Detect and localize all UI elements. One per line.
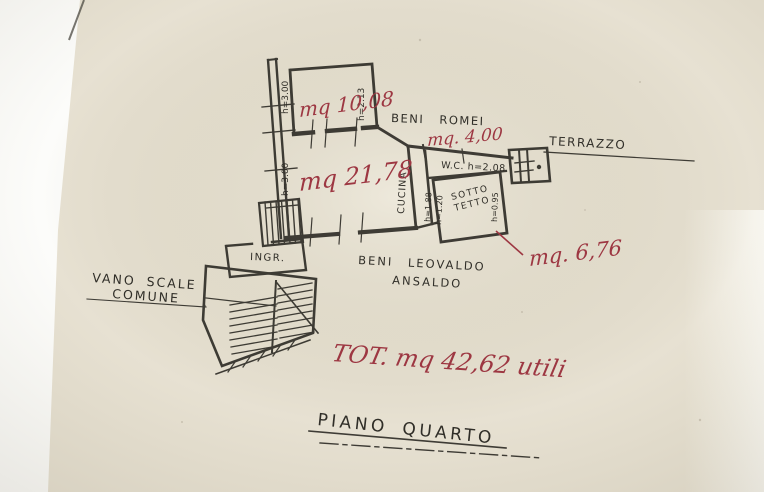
floorplan-photo: BENI ROMEI TERRAZZO W.C. h=2.08 CUCINA S… bbox=[0, 0, 764, 492]
entrance-label: INGR. bbox=[250, 252, 286, 264]
height-main-room: h=3.00 bbox=[281, 162, 291, 196]
height-attic-a: h=1.88 bbox=[423, 192, 434, 222]
height-attic-b: h=1.20 bbox=[434, 195, 445, 225]
height-attic-c: h=0.95 bbox=[490, 192, 500, 222]
floorplan-drawing: BENI ROMEI TERRAZZO W.C. h=2.08 CUCINA S… bbox=[0, 0, 764, 492]
height-top-room-left: h=3.00 bbox=[281, 80, 291, 114]
